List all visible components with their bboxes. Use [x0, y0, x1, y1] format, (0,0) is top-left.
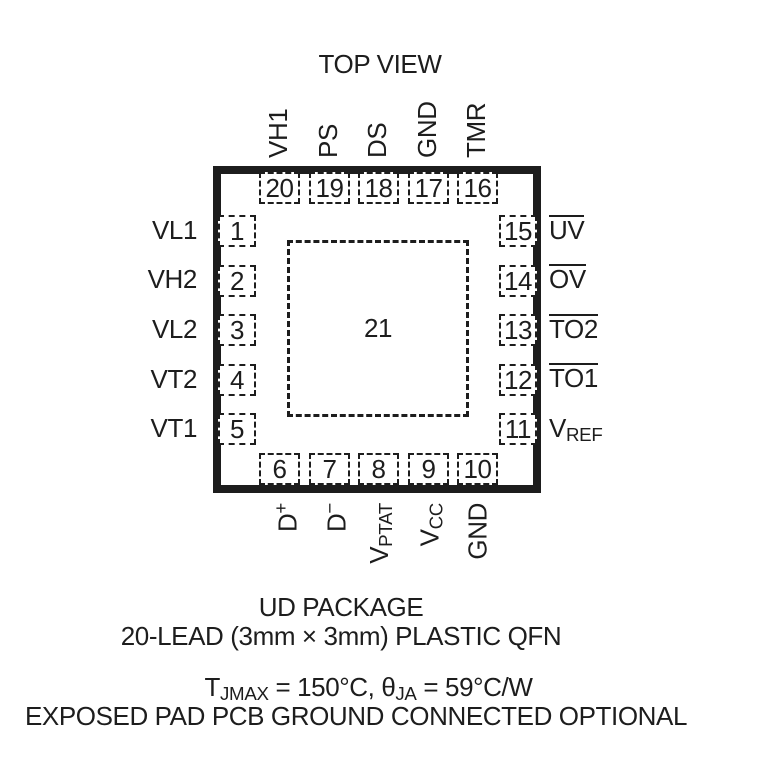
pin-label-text: TO1 [549, 363, 598, 390]
pin-label-right-vref: VREF [549, 415, 602, 448]
pin-label-bottom-vcc: VCC [416, 503, 449, 546]
pin-box-17: 17 [408, 172, 449, 204]
pin-label-right-to2: TO2 [549, 314, 598, 341]
pin-label-text: UV [549, 215, 584, 242]
thermal-value: = 150°C, [269, 672, 382, 702]
pin-box-2: 2 [218, 265, 256, 297]
pin-label-subscript: PTAT [375, 503, 396, 547]
pin-box-13: 13 [499, 314, 537, 346]
package-description: 20-LEAD (3mm × 3mm) PLASTIC QFN [0, 623, 682, 650]
pin-label-text: V [414, 529, 444, 546]
pin-label-text: V [364, 547, 394, 564]
pin-number-19: 19 [315, 173, 343, 204]
thermal-t: T [205, 672, 220, 702]
pin-label-text: D [272, 514, 302, 532]
pin-number-18: 18 [364, 173, 392, 204]
pin-number-13: 13 [504, 315, 532, 346]
pin-box-11: 11 [499, 413, 537, 445]
pin-box-8: 8 [358, 453, 399, 485]
pin-number-4: 4 [230, 365, 244, 396]
thermal-theta: θ [381, 672, 395, 702]
pin-label-bottom-gnd: GND [465, 503, 491, 560]
thermal-theta-value: = 59°C/W [417, 672, 533, 702]
pin-number-9: 9 [421, 454, 435, 485]
pin-label-text: D [321, 514, 351, 532]
pin-number-7: 7 [322, 454, 336, 485]
pin-label-bottom-d-minus: D− [317, 503, 349, 532]
pin-label-left-vt1: VT1 [151, 415, 197, 442]
pin-box-5: 5 [218, 413, 256, 445]
pin-label-top-ds: DS [364, 123, 390, 158]
pin-box-6: 6 [259, 453, 300, 485]
exposed-pad: 21 [287, 240, 469, 417]
pin-label-text: V [549, 413, 566, 443]
pin-label-superscript: − [319, 503, 340, 514]
pin-label-subscript: REF [566, 424, 603, 445]
pin-box-18: 18 [358, 172, 399, 204]
pin-label-left-vl1: VL1 [152, 217, 197, 244]
pin-number-10: 10 [463, 454, 491, 485]
pin-label-superscript: + [270, 503, 291, 514]
pin-label-top-vh1: VH1 [265, 109, 291, 158]
pin-box-7: 7 [309, 453, 350, 485]
pin-label-text: OV [549, 264, 586, 291]
pin-number-20: 20 [265, 173, 293, 204]
pin-label-left-vh2: VH2 [148, 266, 197, 293]
pin-number-11: 11 [505, 414, 531, 445]
pin-box-15: 15 [499, 215, 537, 247]
pin-number-3: 3 [230, 315, 244, 346]
pin-number-12: 12 [504, 365, 532, 396]
pin-label-right-to1: TO1 [549, 363, 598, 390]
pin-number-5: 5 [230, 414, 244, 445]
pin-number-16: 16 [463, 173, 491, 204]
diagram-title: TOP VIEW [0, 51, 760, 78]
pin-number-2: 2 [230, 266, 244, 297]
pin-label-bottom-d-plus: D+ [268, 503, 300, 532]
pin-label-subscript: CC [425, 503, 446, 529]
pin-label-right-ov: OV [549, 264, 586, 291]
pin-label-bottom-vptat: VPTAT [366, 503, 399, 564]
pin-number-8: 8 [371, 454, 385, 485]
pin-box-9: 9 [408, 453, 449, 485]
pin-box-14: 14 [499, 265, 537, 297]
pin-label-left-vt2: VT2 [151, 366, 197, 393]
pin-number-1: 1 [230, 216, 244, 247]
pin-box-3: 3 [218, 314, 256, 346]
pin-box-19: 19 [309, 172, 350, 204]
pin-label-left-vl2: VL2 [152, 316, 197, 343]
pin-box-4: 4 [218, 364, 256, 396]
pin-label-top-gnd: GND [414, 101, 440, 158]
exposed-pad-number: 21 [364, 313, 392, 344]
pin-label-top-tmr: TMR [463, 103, 489, 158]
pin-number-14: 14 [504, 266, 532, 297]
exposed-pad-note: EXPOSED PAD PCB GROUND CONNECTED OPTIONA… [0, 703, 712, 730]
qfn-pinout-diagram: TOP VIEW 21 20 19 18 17 16 1 2 3 4 5 15 … [0, 0, 760, 765]
pin-box-20: 20 [259, 172, 300, 204]
pin-number-15: 15 [504, 216, 532, 247]
pin-label-right-uv: UV [549, 215, 584, 242]
pin-box-1: 1 [218, 215, 256, 247]
pin-box-12: 12 [499, 364, 537, 396]
pin-number-6: 6 [272, 454, 286, 485]
pin-label-text: TO2 [549, 314, 598, 341]
pin-number-17: 17 [414, 173, 442, 204]
pin-label-top-ps: PS [315, 124, 341, 158]
pin-box-16: 16 [457, 172, 498, 204]
pin-box-10: 10 [457, 453, 498, 485]
package-name: UD PACKAGE [0, 594, 682, 621]
